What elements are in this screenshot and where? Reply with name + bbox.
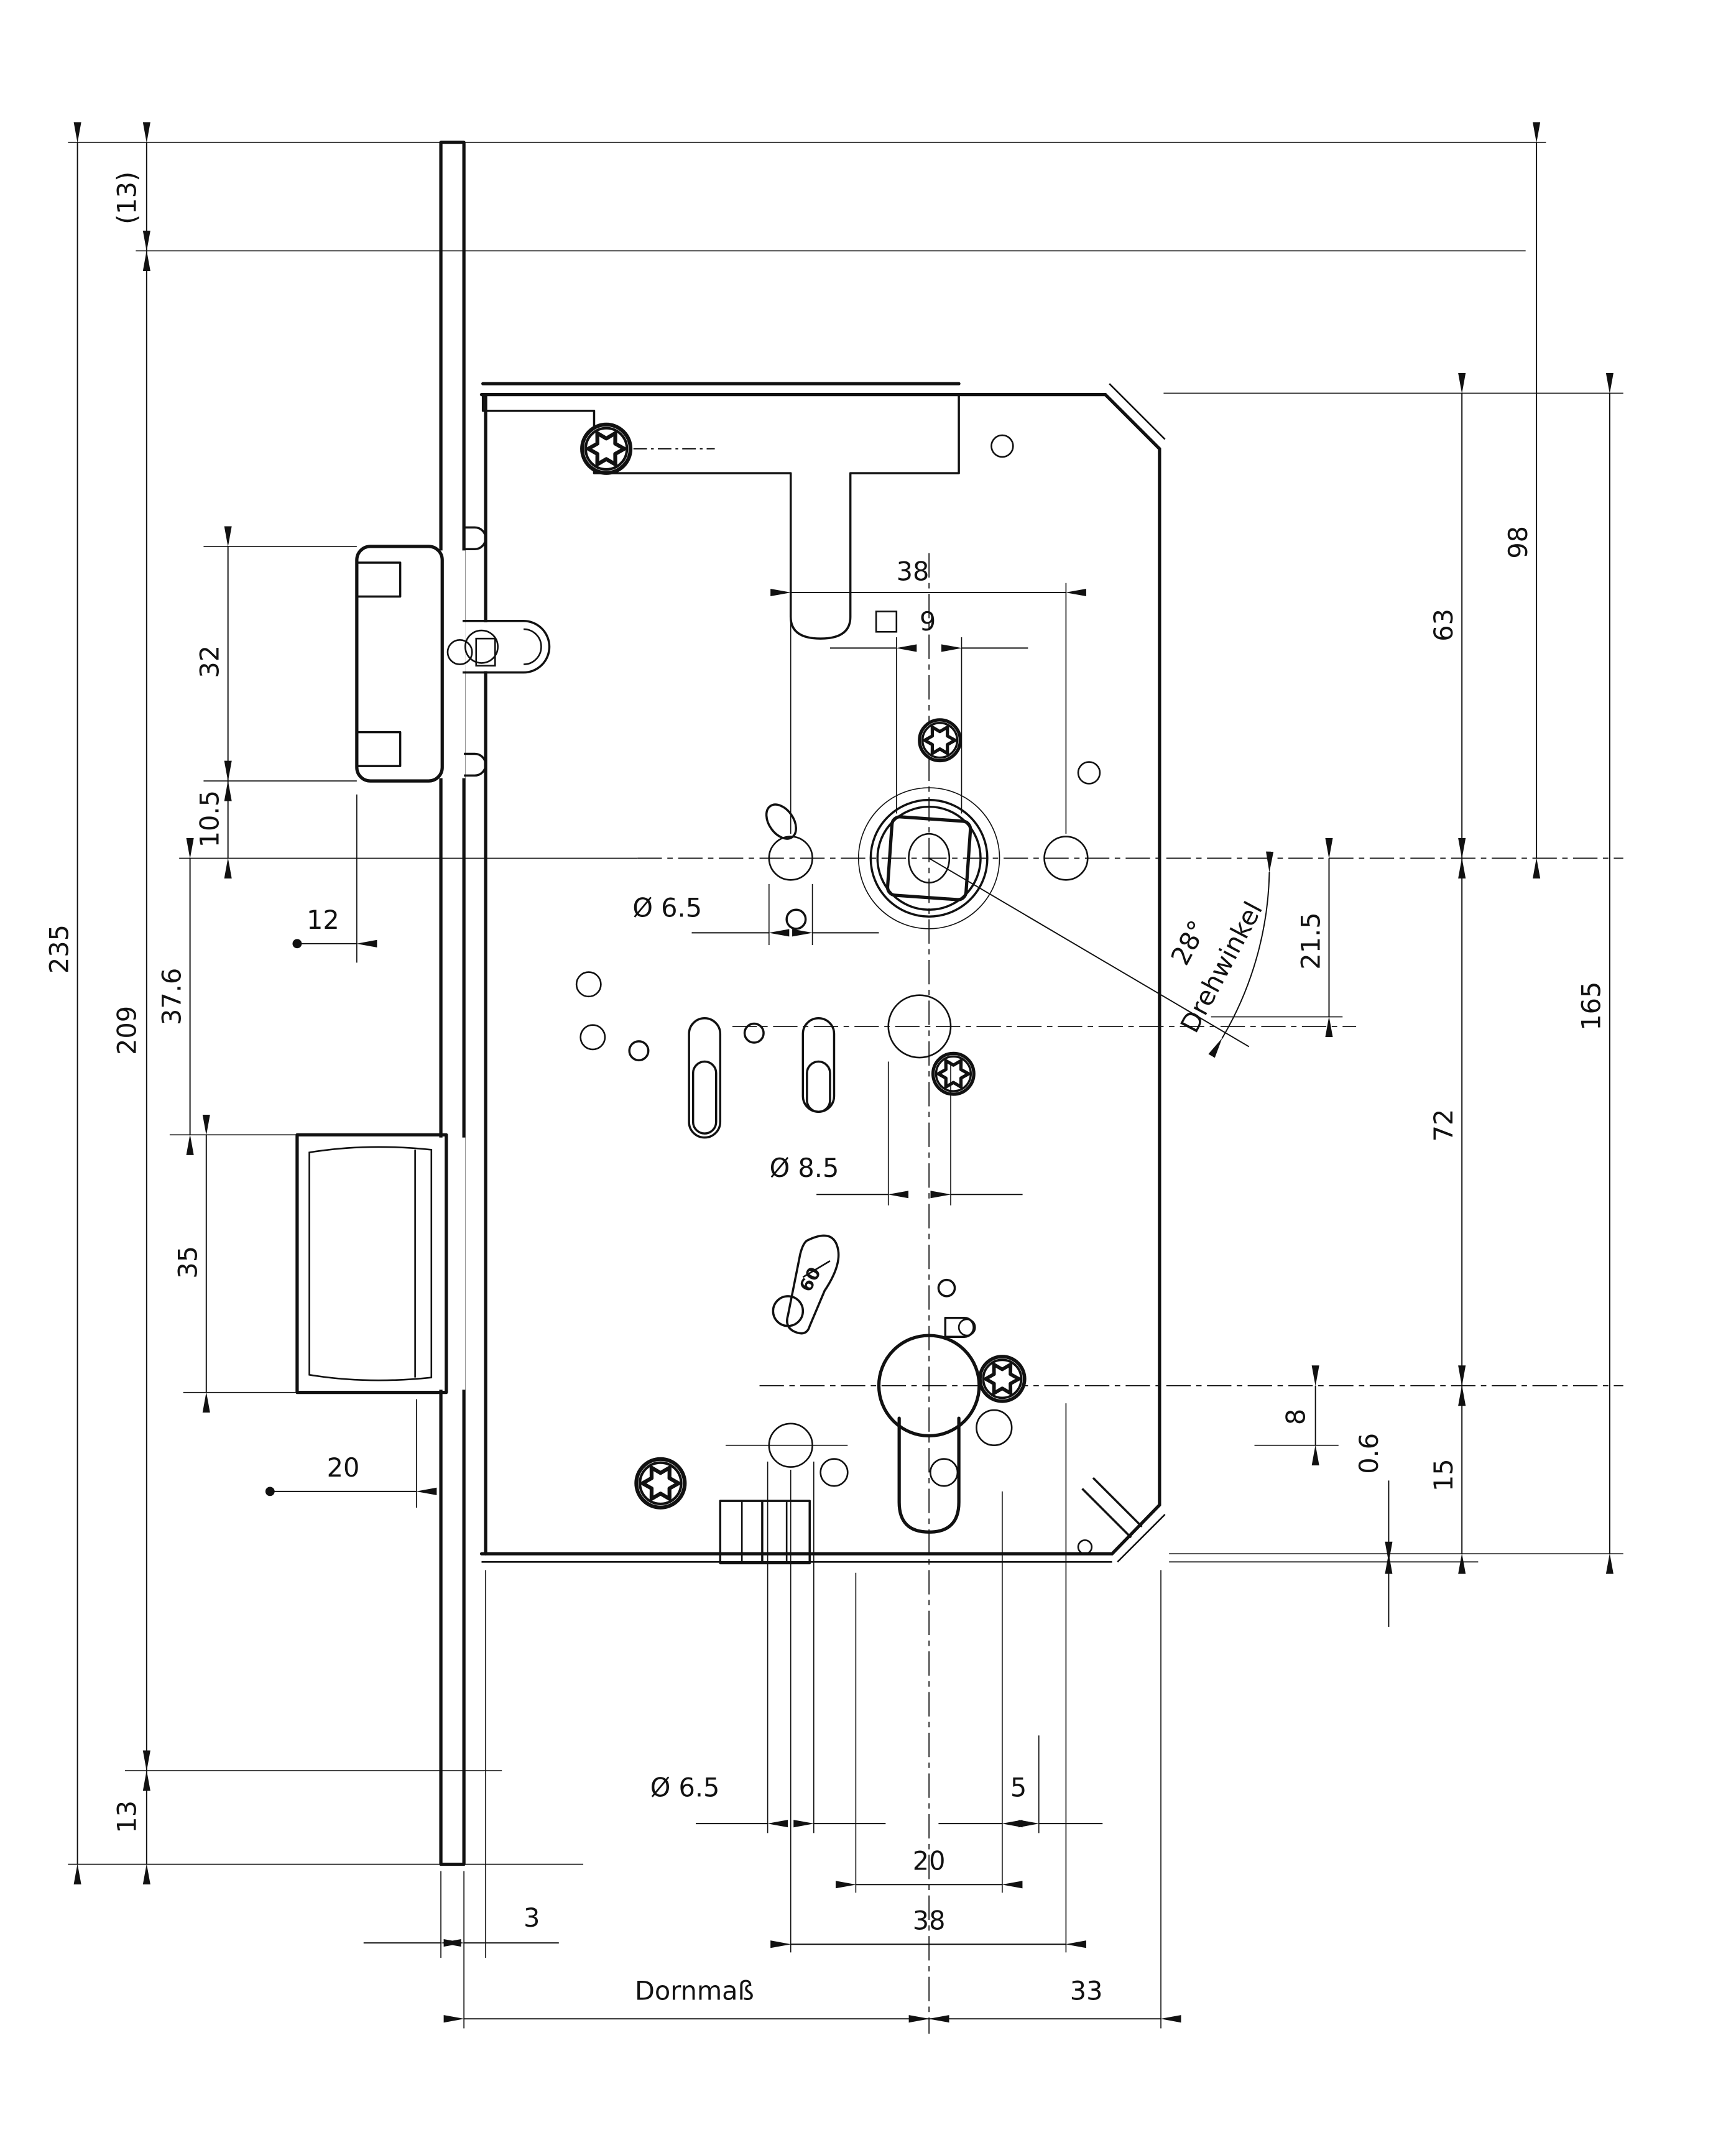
dim-hole-spacing-top: 38 — [791, 556, 1066, 592]
hole-left-column-2 — [581, 1025, 605, 1049]
dim-hole-dia-85: Ø 8.5 — [770, 1153, 1023, 1194]
torx-screw-nut-icon — [933, 1053, 974, 1094]
faceplate — [441, 142, 464, 1865]
dim-cylinder-to-bottom: 15 — [1429, 1386, 1462, 1554]
hole-left-column-1 — [576, 972, 601, 997]
hole-below-screw — [976, 1410, 1012, 1445]
dim-label-38-top: 38 — [897, 556, 930, 586]
dim-label-165: 165 — [1577, 982, 1607, 1031]
dim-center-to-case-edge: 33 — [929, 1976, 1161, 2019]
small-hole-hub-right — [1078, 762, 1100, 784]
deadbolt — [297, 1135, 465, 1392]
case-chamfer-bottom-right — [1112, 1505, 1160, 1554]
dim-plate-height: 209 — [112, 251, 146, 1771]
faceplate-plate — [441, 142, 464, 1865]
dim-screw-offset: 8 — [1281, 1386, 1315, 1445]
dim-label-9: 9 — [920, 607, 936, 637]
torx-screw-cylinder-icon — [980, 1357, 1025, 1401]
dim-overall-height: 235 — [44, 142, 77, 1865]
dim-deadbolt-height: 35 — [173, 1135, 206, 1392]
dim-label-28deg: 28° — [1165, 916, 1213, 970]
dim-label-37-6: 37.6 — [157, 968, 187, 1025]
latch-bolt — [300, 527, 549, 781]
dim-label-32: 32 — [195, 645, 225, 678]
dim-center-to-deadbolt: 37.6 — [157, 858, 190, 1135]
dim-label-20-throw: 20 — [327, 1453, 360, 1483]
dim-offset-5: 5 — [938, 1773, 1102, 1824]
dim-latch-height: 32 — [195, 546, 228, 781]
dim-label-dornmass: Dornmaß — [635, 1976, 754, 2006]
dim-label-235: 235 — [44, 924, 74, 974]
dim-label-dia65-bottom: Ø 6.5 — [650, 1773, 720, 1803]
dim-top-to-center: 98 — [1503, 142, 1536, 858]
case-chamfer-top-right — [1106, 395, 1160, 449]
dim-case-height: 165 — [1577, 393, 1610, 1554]
dim-label-33: 33 — [1070, 1976, 1103, 2006]
dim-label-dia85: Ø 8.5 — [770, 1153, 839, 1183]
torx-screw-hub-icon — [920, 720, 961, 761]
ring-above-cylinder — [938, 1280, 954, 1296]
dim-label-38-bottom: 38 — [913, 1906, 946, 1935]
dim-label-3: 3 — [524, 1903, 540, 1933]
dim-label-10-5: 10.5 — [195, 790, 225, 847]
corner-bracket — [1093, 1478, 1142, 1527]
extension-lines — [68, 142, 1623, 2028]
dim-label-12: 12 — [307, 905, 339, 935]
dim-latch-to-center: 10.5 — [195, 781, 228, 858]
dim-label-8: 8 — [1281, 1409, 1311, 1425]
torx-screw-bottom-left-icon — [636, 1459, 685, 1508]
dim-latch-protrusion: 12 — [292, 905, 356, 948]
dim-label-98: 98 — [1503, 526, 1533, 559]
dim-label-5: 5 — [1010, 1773, 1027, 1803]
mortise-lock-drawing: 235 (13) 209 13 32 10.5 12 37.6 — [0, 0, 1736, 2130]
dim-label-15: 15 — [1429, 1459, 1459, 1491]
latch-spring-clip-bottom — [464, 754, 486, 776]
dim-backset: Dornmaß — [464, 1976, 929, 2019]
dim-label-21-5: 21.5 — [1296, 912, 1326, 969]
dim-center-to-cylinder: 72 — [1429, 858, 1462, 1385]
square-symbol — [876, 612, 897, 632]
dim-label-0-6: 0.6 — [1354, 1433, 1384, 1474]
dim-nut-offset: 21.5 — [1296, 858, 1329, 1017]
small-ring-hub — [787, 910, 806, 929]
dim-bottom-gap: 0.6 — [1354, 1433, 1388, 1627]
dim-bottom-offset: 13 — [112, 1771, 146, 1864]
dim-faceplate-thickness: 3 — [364, 1903, 559, 1943]
torx-screw-top-left-icon — [582, 425, 630, 473]
dim-spacing-38-bottom: 38 — [791, 1906, 1066, 1944]
dim-label-13-top: (13) — [112, 172, 142, 224]
dim-label-72: 72 — [1429, 1109, 1459, 1142]
dim-label-35: 35 — [173, 1246, 203, 1279]
dim-hole-dia-65-center: Ø 6.5 — [632, 893, 879, 933]
dim-case-top-to-center: 63 — [1429, 393, 1462, 858]
hole-top-right — [991, 435, 1013, 457]
dim-label-20-bottom: 20 — [913, 1846, 946, 1876]
dim-label-dia65-center: Ø 6.5 — [632, 893, 702, 923]
dim-label-209: 209 — [112, 1006, 142, 1055]
dim-label-13-bottom: 13 — [112, 1800, 142, 1833]
internal-parts — [576, 435, 1100, 1563]
latch-spring-clip-top — [464, 527, 486, 549]
dim-deadbolt-throw: 20 — [265, 1453, 417, 1496]
dim-top-offset-ref: (13) — [112, 142, 146, 251]
dim-label-63: 63 — [1429, 609, 1459, 642]
case-top-tab-slot — [483, 396, 959, 639]
lever-stamp-60: 60 — [795, 1264, 825, 1295]
ring-left — [629, 1041, 649, 1061]
hole-stem-right — [930, 1459, 958, 1487]
hole-stem-left — [821, 1459, 848, 1487]
